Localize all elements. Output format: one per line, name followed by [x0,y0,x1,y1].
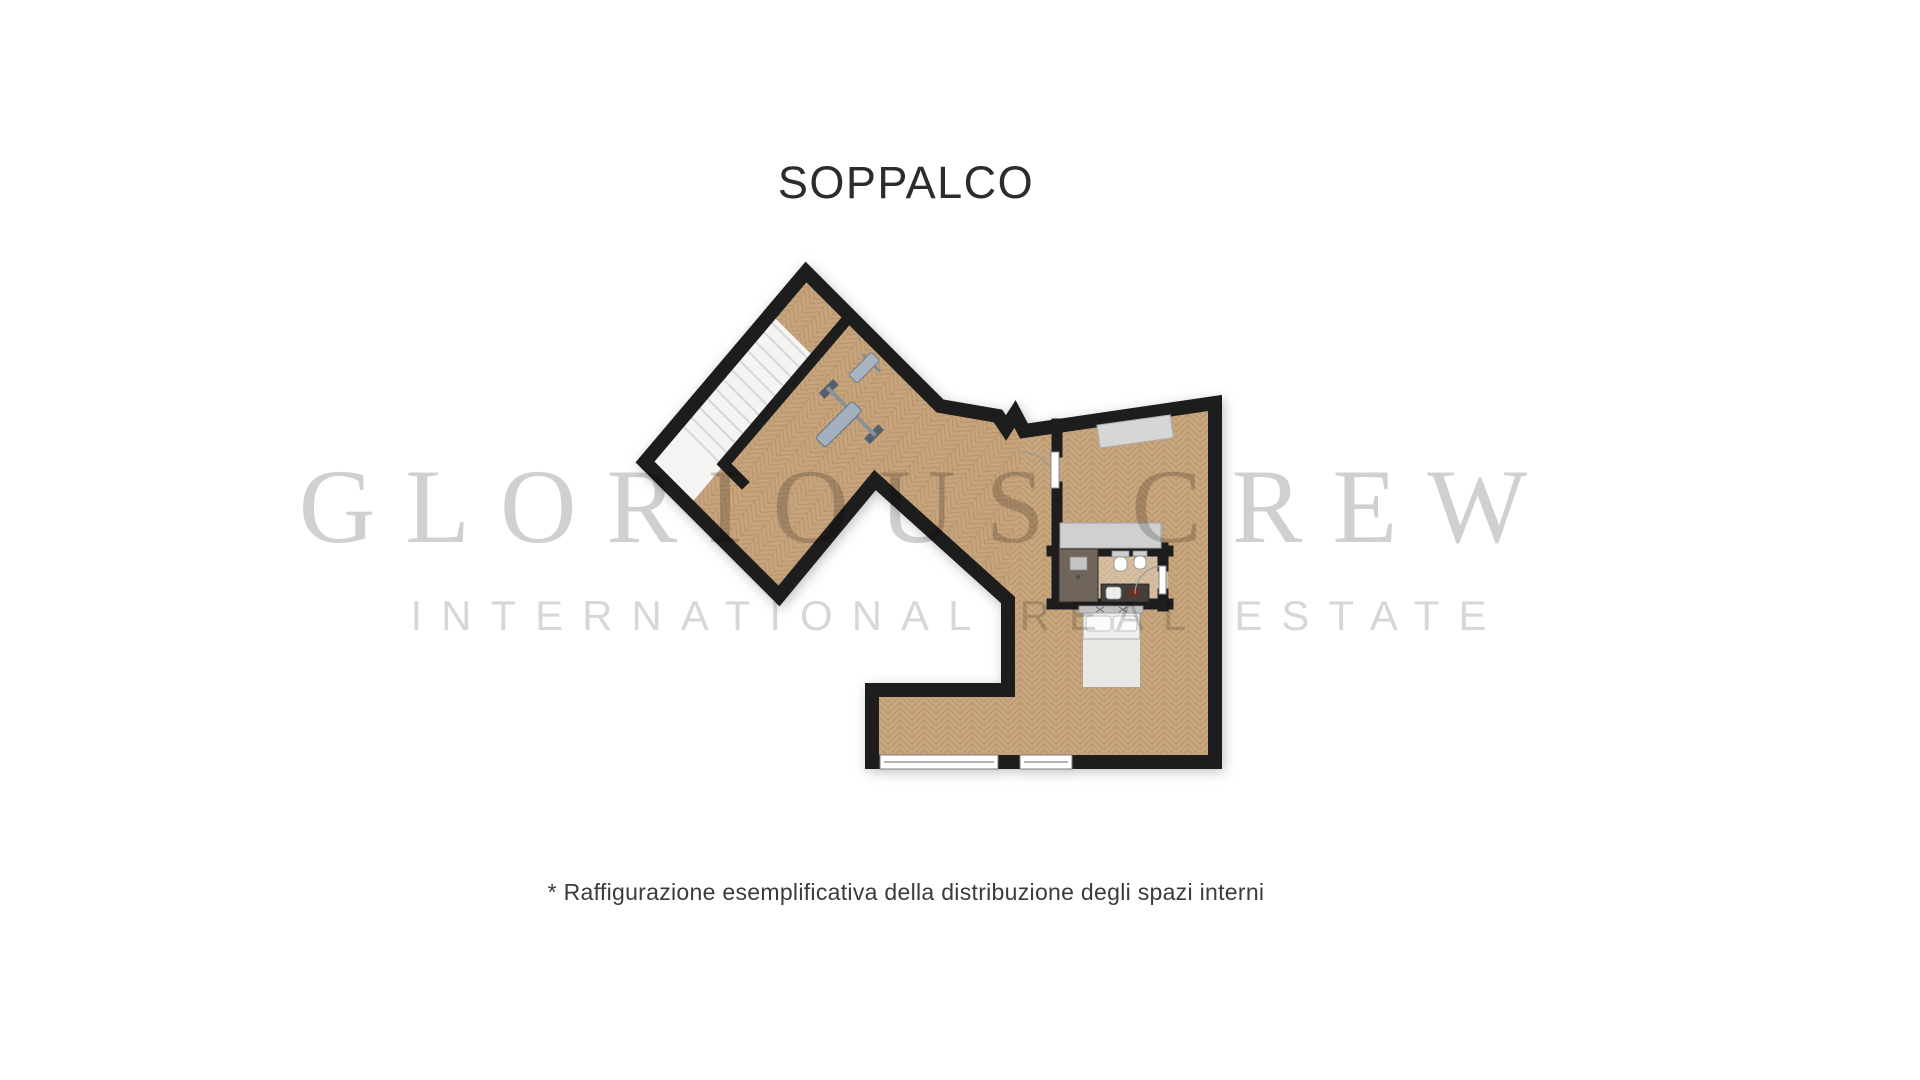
page: SOPPALCO [0,0,1920,1080]
floor-plan [0,0,1920,1080]
shower [1059,549,1098,602]
closet-counter [1060,523,1161,548]
window-right [1020,755,1072,769]
bidet [1133,551,1147,569]
double-bed [1079,606,1143,687]
toilet [1112,551,1129,571]
disclaimer-note: * Raffigurazione esemplificativa della d… [548,879,1265,906]
window-left [880,755,998,769]
sink-counter [1101,584,1149,602]
